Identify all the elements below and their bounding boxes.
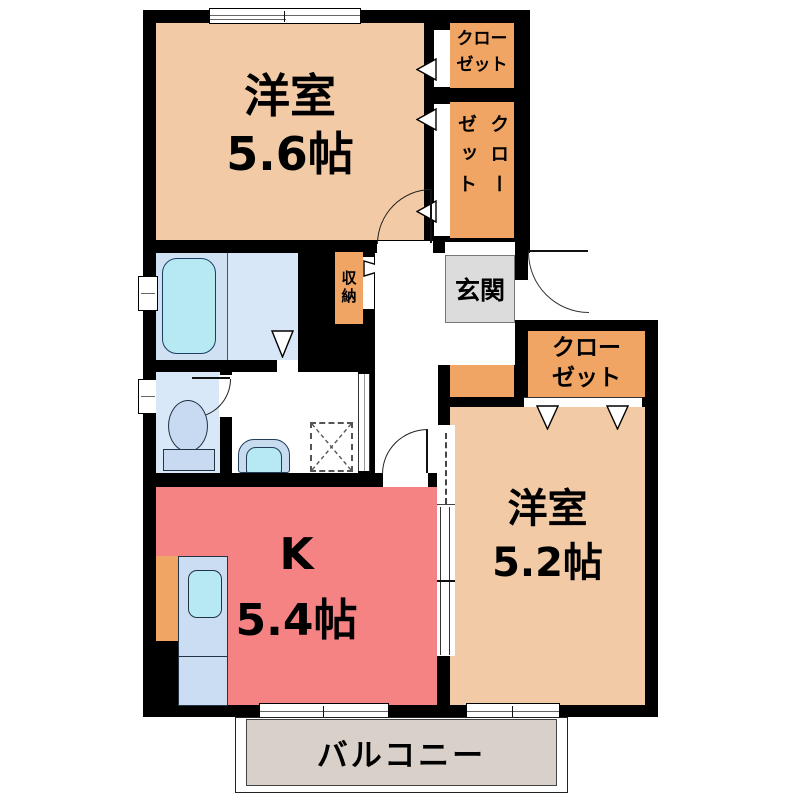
floorplan: 洋室 5.6帖 クロー ゼット クローゼット 収納 bbox=[0, 0, 800, 800]
entrance-label: 玄関 bbox=[455, 271, 505, 307]
open-passage-dashes bbox=[445, 433, 447, 504]
room-west1-door-leaf bbox=[430, 189, 432, 243]
room-west2-label: 洋室 5.2帖 bbox=[450, 482, 645, 590]
closet-door-marker-icon bbox=[416, 108, 437, 131]
toilet-bowl bbox=[168, 400, 208, 452]
wall-porch-stub bbox=[514, 240, 528, 280]
window-bathroom bbox=[138, 276, 158, 311]
storage-label: 収納 bbox=[339, 270, 360, 306]
washroom-sliding-door bbox=[358, 374, 370, 471]
closet-vertical-label: クローゼット bbox=[450, 108, 514, 232]
entrance-top-band bbox=[445, 242, 515, 255]
closet-top-label: クロー ゼット bbox=[450, 27, 514, 78]
balcony-label: バルコニー bbox=[317, 730, 486, 775]
room-west2-size: 5.2帖 bbox=[450, 536, 645, 590]
bathtub bbox=[162, 258, 216, 354]
washer-space bbox=[310, 422, 353, 472]
closet-door-marker-icon bbox=[536, 405, 559, 430]
closet-bedroom2-line1: クロー bbox=[528, 334, 645, 364]
kitchen-sink bbox=[188, 570, 222, 618]
closet-vertical-text: クローゼット bbox=[450, 114, 515, 226]
entrance-hall bbox=[438, 323, 515, 365]
room-west1-size: 5.6帖 bbox=[156, 126, 424, 184]
storage: 収納 bbox=[335, 252, 363, 324]
room-west2-name: 洋室 bbox=[450, 482, 645, 536]
kitchen-corner-wall bbox=[156, 641, 178, 705]
toilet-tank bbox=[163, 449, 215, 471]
kitchen-door-opening bbox=[383, 473, 428, 487]
closet-door-marker-icon bbox=[606, 405, 629, 430]
room-west1-name: 洋室 bbox=[156, 68, 424, 126]
entrance: 玄関 bbox=[445, 255, 515, 323]
entrance-storage-block bbox=[450, 365, 514, 397]
partition-tick bbox=[437, 580, 455, 582]
closet-top-line1: クロー bbox=[450, 27, 514, 53]
washbasin-sink bbox=[246, 447, 282, 473]
closet-door-marker-icon bbox=[416, 58, 437, 81]
closet-top-line2: ゼット bbox=[450, 53, 514, 79]
front-door-arc bbox=[528, 252, 589, 313]
room-west1-label: 洋室 5.6帖 bbox=[156, 68, 424, 183]
closet-bedroom2-line2: ゼット bbox=[528, 364, 645, 394]
window-toilet bbox=[138, 379, 158, 414]
kitchen-side-block bbox=[156, 556, 178, 641]
washer-cross-icon bbox=[312, 424, 351, 470]
corridor-upper bbox=[375, 253, 445, 363]
balcony: バルコニー bbox=[246, 719, 557, 786]
closet-bedroom2-label: クロー ゼット bbox=[528, 334, 645, 394]
washroom-door-marker-icon bbox=[271, 330, 294, 358]
divider-line bbox=[437, 504, 455, 505]
window-top bbox=[209, 8, 361, 24]
